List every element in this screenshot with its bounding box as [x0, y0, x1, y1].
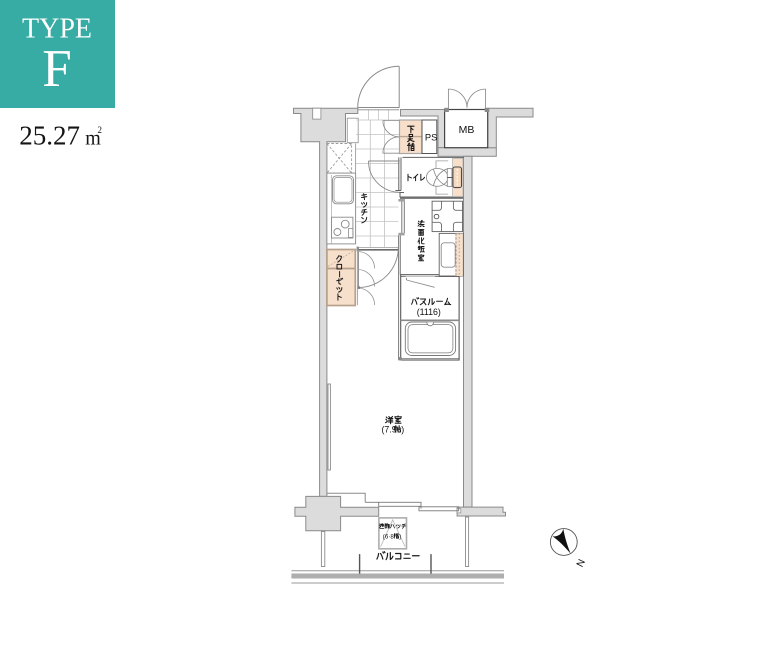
svg-text:F: F	[42, 40, 71, 98]
svg-text:): )	[399, 533, 401, 540]
svg-text:2: 2	[98, 125, 103, 135]
svg-text:(6·8: (6·8	[383, 533, 395, 540]
svg-text:(7.9: (7.9	[382, 424, 397, 434]
svg-text:MB: MB	[459, 124, 475, 136]
svg-text:): )	[401, 424, 404, 434]
svg-text:25.27: 25.27	[19, 120, 80, 150]
svg-text:PS: PS	[425, 132, 437, 142]
svg-text:(1116): (1116)	[417, 307, 441, 317]
